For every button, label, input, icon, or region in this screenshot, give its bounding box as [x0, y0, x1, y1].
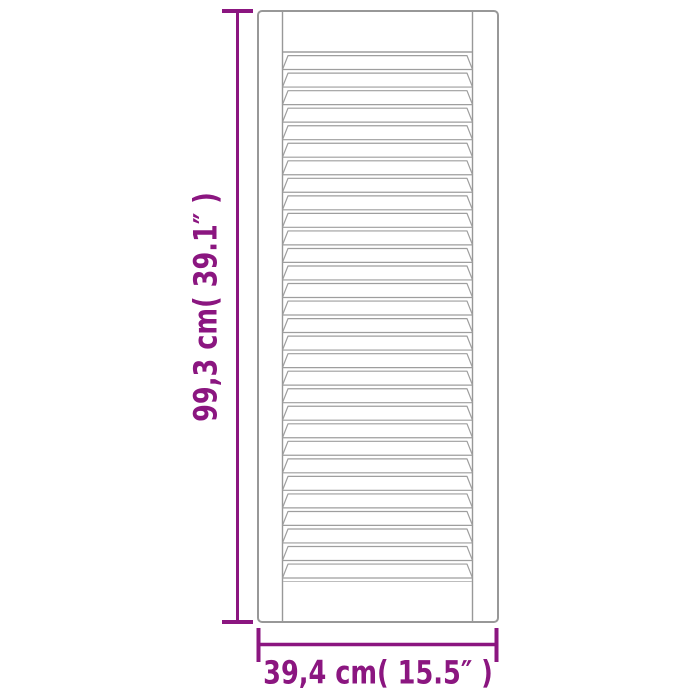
- louver-slat: [283, 529, 473, 543]
- louver-slat: [283, 56, 473, 70]
- louver-slat: [283, 547, 473, 561]
- height-dimension-label: 99,3 cm( 39.1″ ): [188, 163, 225, 450]
- product-dimension-figure: 99,3 cm( 39.1″ ) 39,4 cm( 15.5″ ): [0, 0, 700, 700]
- louver-slat: [283, 476, 473, 490]
- louver-slat: [283, 301, 473, 315]
- louver-slat: [283, 248, 473, 262]
- louver-slat: [283, 266, 473, 280]
- louver-slat: [283, 178, 473, 192]
- louver-slat: [283, 319, 473, 333]
- louver-slat: [283, 406, 473, 420]
- louver-slat: [283, 108, 473, 122]
- louver-slat: [283, 354, 473, 368]
- louver-slat: [283, 231, 473, 245]
- louver-slat: [283, 371, 473, 385]
- width-dimension-label: 39,4 cm( 15.5″ ): [234, 655, 521, 692]
- width-dimension-text: 39,4 cm( 15.5″ ): [263, 655, 493, 692]
- louver-slat: [283, 459, 473, 473]
- louver-slat: [283, 161, 473, 175]
- louver-slat: [283, 511, 473, 525]
- door-panel: [258, 11, 498, 622]
- height-dimension-marker: [222, 11, 253, 622]
- louvre-door-drawing: [0, 0, 700, 700]
- louver-slat: [283, 213, 473, 227]
- louver-slat: [283, 564, 473, 578]
- louver-slat: [283, 73, 473, 87]
- louver-slat: [283, 196, 473, 210]
- height-dimension-text: 99,3 cm( 39.1″ ): [188, 192, 225, 422]
- louver-slat: [283, 441, 473, 455]
- louver-slat: [283, 126, 473, 140]
- louver-slat: [283, 143, 473, 157]
- louver-slat: [283, 424, 473, 438]
- louver-slat: [283, 336, 473, 350]
- louver-slat: [283, 389, 473, 403]
- louver-slat: [283, 494, 473, 508]
- louver-slat: [283, 91, 473, 105]
- louver-slat: [283, 284, 473, 298]
